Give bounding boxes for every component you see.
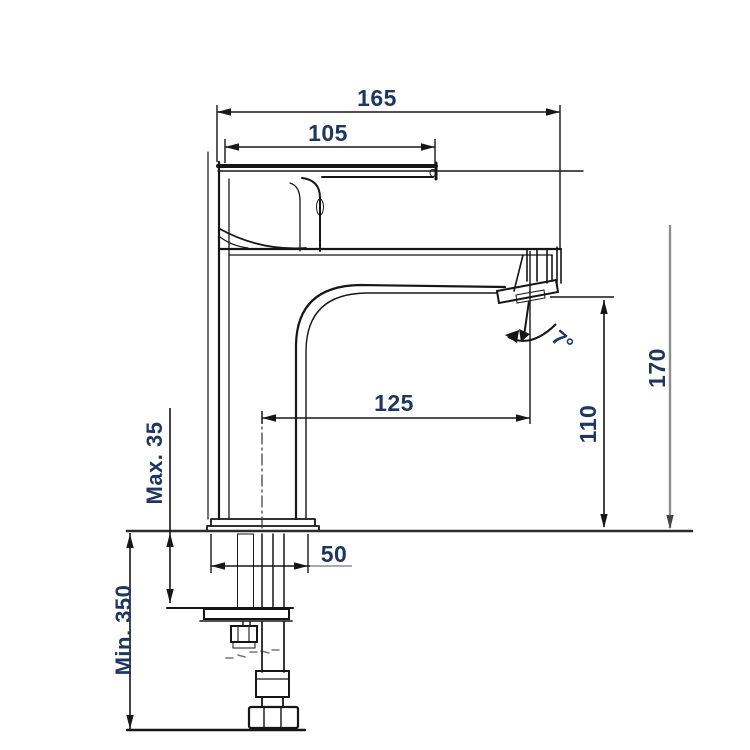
aerator-angle-indicator: 7° [505, 301, 578, 357]
arrowhead-left [225, 143, 239, 151]
arrowhead-left [217, 108, 231, 116]
dim-label-105: 105 [308, 120, 348, 146]
flex-hose [262, 622, 284, 672]
drawing-canvas: 165 105 125 110 170 Max. 35 [0, 0, 750, 750]
neck-sweep-inner [220, 237, 248, 248]
hose-connector-nut [249, 707, 298, 728]
dimension-base-width: 50 [211, 534, 352, 573]
dimension-handle-length: 105 [225, 120, 435, 165]
upper-body-front-inner [290, 183, 300, 251]
dim-label-125: 125 [374, 390, 414, 416]
hose-ferrule [256, 671, 289, 697]
neck-sweep-curve [220, 229, 306, 248]
dim-label-7deg: 7° [547, 326, 578, 357]
arrowhead-left [211, 562, 225, 569]
arrowhead-right [421, 143, 435, 151]
mounting-nut [231, 626, 257, 642]
arrowhead-bottom [600, 514, 607, 528]
arrowhead-right [294, 562, 308, 569]
dim-label-110: 110 [575, 405, 601, 444]
aerator-plate [497, 280, 558, 303]
hose-neck [262, 697, 283, 707]
angle-leader-line [524, 301, 529, 336]
arrowhead-bottom [666, 515, 673, 529]
dim-label-165: 165 [357, 85, 397, 111]
arrowhead-bottom [126, 715, 133, 729]
supply-tubes [262, 534, 284, 607]
dimension-hose-length: Min. 350 [111, 533, 136, 729]
dim-label-50: 50 [321, 541, 348, 567]
mounting-nut-facets [238, 626, 249, 642]
mounting-plate [204, 609, 289, 619]
arrowhead-top [126, 534, 133, 548]
dimension-spout-reach: 125 [262, 251, 530, 424]
dim-label-170: 170 [644, 348, 670, 388]
arrowhead-right [546, 108, 560, 116]
arrowhead-top [600, 300, 607, 314]
arrowhead-left [262, 414, 276, 422]
angle-arrowhead [505, 330, 519, 343]
thread-marking [226, 650, 279, 658]
ext-line [211, 534, 308, 573]
upper-body-front-outer [302, 178, 320, 251]
under-counter-assembly [127, 531, 692, 730]
threaded-shank [238, 534, 254, 608]
dim-label-min350: Min. 350 [111, 585, 136, 676]
base-flange [207, 519, 319, 531]
arrowhead-top [166, 533, 173, 547]
faucet-technical-drawing: 165 105 125 110 170 Max. 35 [0, 0, 750, 750]
arrowhead-bottom [166, 589, 173, 603]
dimension-overall-height: 170 [644, 225, 674, 529]
dim-label-max35: Max. 35 [142, 422, 167, 505]
hose-connector-facets [264, 707, 281, 728]
arrowhead-right [516, 414, 530, 422]
dimension-deck-thickness: Max. 35 [142, 408, 174, 603]
